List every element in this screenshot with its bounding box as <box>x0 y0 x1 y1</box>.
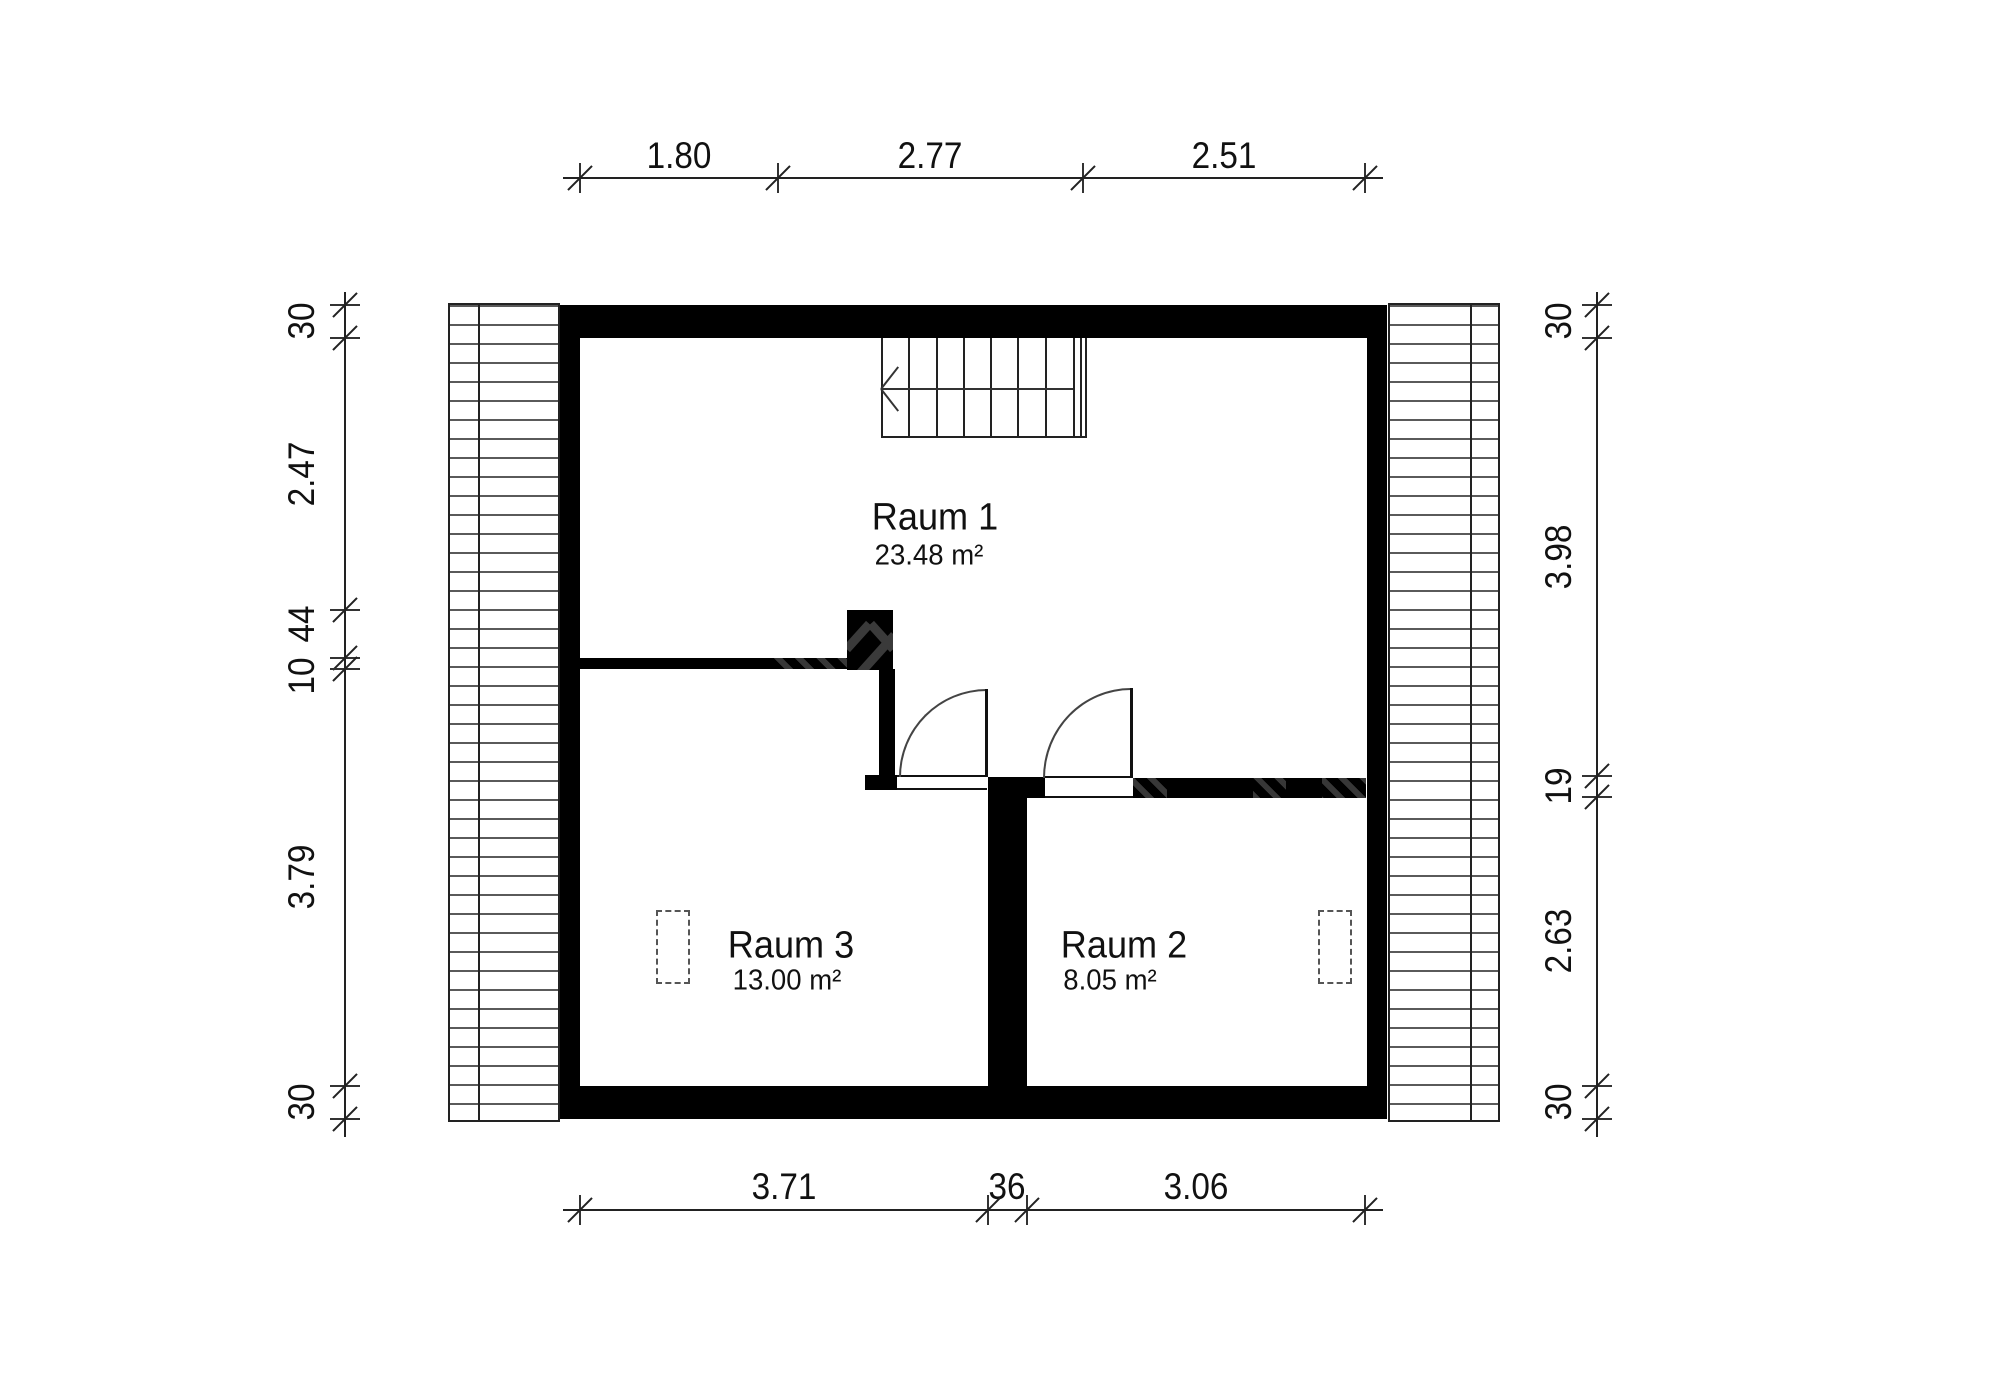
wall-raum1-raum3 <box>578 658 772 669</box>
door1-threshold-bottom <box>897 788 987 790</box>
room-label-raum2: Raum 2 <box>1061 925 1187 968</box>
dim-line-bottom <box>563 1209 1383 1211</box>
dim-label: 1.80 <box>647 135 712 177</box>
door1-swing-arc <box>899 689 987 777</box>
dim-label: 3.79 <box>281 845 323 910</box>
dim-line-top <box>563 177 1383 179</box>
dim-label: 44 <box>281 605 323 642</box>
dim-label: 3.98 <box>1538 525 1580 590</box>
dim-label: 19 <box>1538 767 1580 804</box>
door1-left-jamb <box>865 775 897 790</box>
wall-raum1-raum3-hatched <box>772 658 847 669</box>
right-roof-hatch-divider <box>1470 305 1472 1120</box>
floor-plan-canvas: 1.80 2.77 2.51 3.71 36 3.06 30 2.47 44 1… <box>0 0 2000 1390</box>
door2-leaf <box>1130 688 1133 778</box>
dim-label: 2.77 <box>898 135 963 177</box>
exterior-wall-top <box>560 305 1387 338</box>
room-label-raum1: Raum 1 <box>872 497 998 540</box>
exterior-wall-bottom <box>560 1086 1387 1119</box>
wall-raum3-nook <box>879 669 895 790</box>
dim-label: 30 <box>281 1083 323 1120</box>
room-area-raum3: 13.00 m² <box>733 965 842 998</box>
exterior-wall-right <box>1367 305 1387 1119</box>
door2-swing-arc <box>1043 688 1131 778</box>
roof-window-raum3 <box>656 910 690 984</box>
wall-between-doors <box>988 777 1045 798</box>
room-area-raum1: 23.48 m² <box>875 540 984 573</box>
right-roof-hatch <box>1388 303 1500 1122</box>
dim-line-right <box>1596 292 1598 1137</box>
dim-label: 30 <box>281 302 323 339</box>
chimney-block <box>847 610 893 670</box>
dim-label: 10 <box>281 657 323 694</box>
dim-label: 2.51 <box>1192 135 1257 177</box>
exterior-wall-left <box>560 305 580 1119</box>
left-roof-hatch-divider <box>478 305 480 1120</box>
dim-line-left <box>344 292 346 1137</box>
dim-label: 30 <box>1538 302 1580 339</box>
left-roof-hatch <box>448 303 560 1122</box>
room-area-raum2: 8.05 m² <box>1063 965 1156 998</box>
dim-label: 2.63 <box>1538 909 1580 974</box>
wall-raum3-raum2 <box>988 798 1027 1086</box>
wall-raum1-raum2-solid <box>1286 778 1322 798</box>
dim-label: 30 <box>1538 1083 1580 1120</box>
wall-raum1-raum2-solid <box>1167 778 1253 798</box>
door2-threshold-bottom <box>1045 796 1133 798</box>
roof-window-raum2 <box>1318 910 1352 984</box>
stair-tread <box>1073 338 1075 438</box>
room-label-raum3: Raum 3 <box>728 925 854 968</box>
dim-label: 3.06 <box>1164 1166 1229 1208</box>
stair-tread <box>1080 338 1082 438</box>
door1-leaf <box>985 689 988 777</box>
dim-label: 2.47 <box>281 442 323 507</box>
stair-walk-line <box>881 388 1073 390</box>
dim-label: 3.71 <box>752 1166 817 1208</box>
